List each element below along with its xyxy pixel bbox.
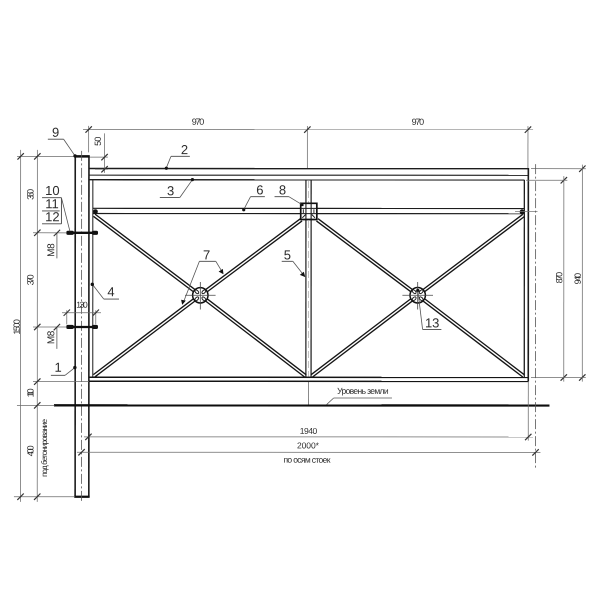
svg-text:12: 12 [45, 209, 59, 224]
svg-text:13: 13 [425, 315, 439, 330]
svg-text:130: 130 [76, 300, 88, 310]
svg-text:370: 370 [26, 274, 36, 285]
svg-text:50: 50 [93, 137, 103, 146]
svg-text:400: 400 [25, 445, 35, 456]
svg-text:1500: 1500 [12, 319, 22, 335]
svg-text:3: 3 [167, 183, 174, 198]
svg-text:110: 110 [25, 388, 35, 397]
svg-text:Уровень земли: Уровень земли [337, 386, 389, 396]
svg-text:6: 6 [256, 182, 263, 197]
svg-text:под бетонирование: под бетонирование [40, 418, 49, 477]
svg-text:9: 9 [52, 125, 59, 140]
svg-text:1: 1 [55, 360, 62, 375]
svg-text:М8: М8 [46, 330, 57, 344]
svg-text:7: 7 [203, 247, 210, 262]
svg-text:4: 4 [107, 284, 114, 299]
svg-text:870: 870 [554, 272, 564, 284]
svg-text:2000*: 2000* [297, 440, 320, 450]
svg-text:8: 8 [279, 182, 286, 197]
svg-text:970: 970 [412, 117, 425, 127]
svg-text:970: 970 [192, 117, 205, 127]
svg-text:М8: М8 [46, 243, 57, 257]
svg-text:940: 940 [573, 273, 583, 285]
svg-text:по осям стоек: по осям стоек [283, 455, 330, 465]
svg-text:5: 5 [284, 247, 291, 262]
svg-text:1940: 1940 [300, 426, 318, 436]
svg-text:350: 350 [26, 189, 36, 200]
svg-text:2: 2 [181, 142, 188, 157]
